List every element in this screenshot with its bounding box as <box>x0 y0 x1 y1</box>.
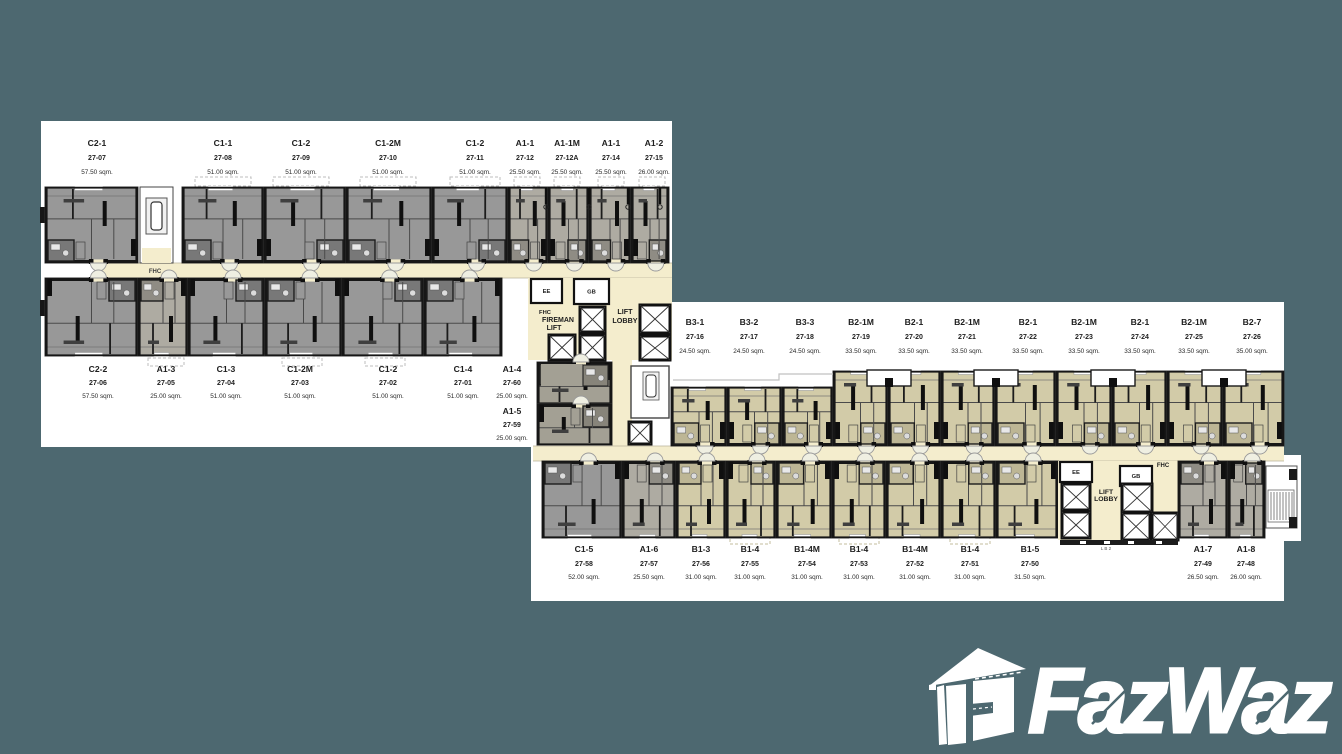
svg-text:EE: EE <box>1072 470 1080 476</box>
svg-text:25.00 sqm.: 25.00 sqm. <box>150 393 182 400</box>
svg-text:GB: GB <box>1132 474 1141 480</box>
svg-text:31.00 sqm.: 31.00 sqm. <box>954 574 986 581</box>
svg-text:C1-2: C1-2 <box>466 138 485 148</box>
svg-text:25.50 sqm.: 25.50 sqm. <box>633 574 665 581</box>
svg-text:C1-2: C1-2 <box>379 364 398 374</box>
svg-text:27-58: 27-58 <box>575 561 593 568</box>
svg-text:27-20: 27-20 <box>905 334 923 341</box>
svg-text:24.50 sqm.: 24.50 sqm. <box>789 348 821 355</box>
svg-text:EE: EE <box>543 289 551 295</box>
svg-text:27-50: 27-50 <box>1021 561 1039 568</box>
svg-text:24.50 sqm.: 24.50 sqm. <box>679 348 711 355</box>
svg-text:27-22: 27-22 <box>1019 334 1037 341</box>
svg-text:25.50 sqm.: 25.50 sqm. <box>551 169 583 176</box>
svg-text:26.00 sqm.: 26.00 sqm. <box>1230 574 1262 581</box>
svg-text:C1-1: C1-1 <box>214 138 233 148</box>
svg-text:27-48: 27-48 <box>1237 561 1255 568</box>
svg-text:27-15: 27-15 <box>645 155 663 162</box>
svg-text:A1-2: A1-2 <box>645 138 664 148</box>
svg-text:31.50 sqm.: 31.50 sqm. <box>1014 574 1046 581</box>
svg-text:FHC: FHC <box>1157 463 1170 469</box>
svg-text:27-08: 27-08 <box>214 155 232 162</box>
svg-text:LOBBY: LOBBY <box>612 316 637 325</box>
svg-text:B2-1M: B2-1M <box>1181 317 1207 327</box>
svg-text:LIFT: LIFT <box>1099 489 1114 496</box>
svg-text:33.50 sqm.: 33.50 sqm. <box>951 348 983 355</box>
svg-text:57.50 sqm.: 57.50 sqm. <box>81 169 113 176</box>
svg-text:C2-1: C2-1 <box>88 138 107 148</box>
svg-text:27-16: 27-16 <box>686 334 704 341</box>
svg-text:33.50 sqm.: 33.50 sqm. <box>845 348 877 355</box>
svg-text:27-19: 27-19 <box>852 334 870 341</box>
svg-text:A1-1: A1-1 <box>602 138 621 148</box>
svg-text:31.00 sqm.: 31.00 sqm. <box>899 574 931 581</box>
svg-text:31.00 sqm.: 31.00 sqm. <box>685 574 717 581</box>
svg-text:B2-7: B2-7 <box>1243 317 1262 327</box>
svg-text:33.50 sqm.: 33.50 sqm. <box>1178 348 1210 355</box>
svg-text:33.50 sqm.: 33.50 sqm. <box>1012 348 1044 355</box>
svg-text:C1-5: C1-5 <box>575 544 594 554</box>
svg-text:B3-1: B3-1 <box>686 317 705 327</box>
svg-text:B2-1M: B2-1M <box>954 317 980 327</box>
svg-text:27-07: 27-07 <box>88 155 106 162</box>
svg-text:52.00 sqm.: 52.00 sqm. <box>568 574 600 581</box>
svg-text:27-60: 27-60 <box>503 380 521 387</box>
svg-text:27-54: 27-54 <box>798 561 816 568</box>
svg-text:B2-1M: B2-1M <box>848 317 874 327</box>
svg-text:A1-1: A1-1 <box>516 138 535 148</box>
svg-text:A1-5: A1-5 <box>503 406 522 416</box>
svg-text:27-04: 27-04 <box>217 380 235 387</box>
svg-text:27-59: 27-59 <box>503 422 521 429</box>
svg-text:LOBBY: LOBBY <box>1094 496 1118 503</box>
svg-text:31.00 sqm.: 31.00 sqm. <box>791 574 823 581</box>
svg-text:27-17: 27-17 <box>740 334 758 341</box>
svg-text:35.00 sqm.: 35.00 sqm. <box>1236 348 1268 355</box>
svg-text:FHC: FHC <box>149 269 162 275</box>
svg-text:B1-4M: B1-4M <box>902 544 928 554</box>
svg-text:FIREMAN: FIREMAN <box>542 317 574 324</box>
svg-text:A1-8: A1-8 <box>1237 544 1256 554</box>
svg-text:27-12A: 27-12A <box>556 155 579 162</box>
svg-text:27-26: 27-26 <box>1243 334 1261 341</box>
svg-text:C1-2M: C1-2M <box>287 364 313 374</box>
svg-text:27-03: 27-03 <box>291 380 309 387</box>
svg-text:B1-4: B1-4 <box>741 544 760 554</box>
svg-text:A1-4: A1-4 <box>503 364 522 374</box>
svg-text:25.50 sqm.: 25.50 sqm. <box>509 169 541 176</box>
svg-text:25.00 sqm.: 25.00 sqm. <box>496 435 528 442</box>
svg-text:B2-1: B2-1 <box>1019 317 1038 327</box>
svg-text:A1-3: A1-3 <box>157 364 176 374</box>
svg-text:27-05: 27-05 <box>157 380 175 387</box>
svg-text:L B 2: L B 2 <box>1101 546 1112 551</box>
svg-text:26.00 sqm.: 26.00 sqm. <box>638 169 670 176</box>
svg-text:51.00 sqm.: 51.00 sqm. <box>285 169 317 176</box>
svg-text:25.50 sqm.: 25.50 sqm. <box>595 169 627 176</box>
svg-text:57.50 sqm.: 57.50 sqm. <box>82 393 114 400</box>
svg-text:31.00 sqm.: 31.00 sqm. <box>734 574 766 581</box>
svg-text:27-53: 27-53 <box>850 561 868 568</box>
svg-text:51.00 sqm.: 51.00 sqm. <box>284 393 316 400</box>
svg-text:A1-6: A1-6 <box>640 544 659 554</box>
svg-text:B1-4M: B1-4M <box>794 544 820 554</box>
svg-text:27-09: 27-09 <box>292 155 310 162</box>
svg-text:27-25: 27-25 <box>1185 334 1203 341</box>
svg-text:FHC: FHC <box>539 310 552 316</box>
svg-text:A1-7: A1-7 <box>1194 544 1213 554</box>
svg-text:25.00 sqm.: 25.00 sqm. <box>496 393 528 400</box>
svg-text:27-51: 27-51 <box>961 561 979 568</box>
svg-text:27-14: 27-14 <box>602 155 620 162</box>
svg-text:27-24: 27-24 <box>1131 334 1149 341</box>
svg-text:LIFT: LIFT <box>617 307 633 316</box>
svg-text:27-18: 27-18 <box>796 334 814 341</box>
svg-text:B1-4: B1-4 <box>961 544 980 554</box>
svg-text:27-06: 27-06 <box>89 380 107 387</box>
svg-text:C1-2M: C1-2M <box>375 138 401 148</box>
svg-text:27-11: 27-11 <box>466 155 484 162</box>
svg-text:27-10: 27-10 <box>379 155 397 162</box>
svg-text:27-49: 27-49 <box>1194 561 1212 568</box>
svg-text:C2-2: C2-2 <box>89 364 108 374</box>
svg-text:27-12: 27-12 <box>516 155 534 162</box>
svg-text:51.00 sqm.: 51.00 sqm. <box>207 169 239 176</box>
svg-text:B2-1: B2-1 <box>905 317 924 327</box>
svg-text:31.00 sqm.: 31.00 sqm. <box>843 574 875 581</box>
svg-text:C1-3: C1-3 <box>217 364 236 374</box>
svg-text:B1-4: B1-4 <box>850 544 869 554</box>
svg-text:B3-2: B3-2 <box>740 317 759 327</box>
svg-text:51.00 sqm.: 51.00 sqm. <box>210 393 242 400</box>
svg-text:27-21: 27-21 <box>958 334 976 341</box>
svg-text:27-01: 27-01 <box>454 380 472 387</box>
svg-text:FazWaz: FazWaz <box>1028 650 1332 752</box>
svg-text:33.50 sqm.: 33.50 sqm. <box>1068 348 1100 355</box>
svg-text:27-56: 27-56 <box>692 561 710 568</box>
svg-text:51.00 sqm.: 51.00 sqm. <box>459 169 491 176</box>
svg-text:B3-3: B3-3 <box>796 317 815 327</box>
svg-text:24.50 sqm.: 24.50 sqm. <box>733 348 765 355</box>
svg-text:51.00 sqm.: 51.00 sqm. <box>372 393 404 400</box>
svg-text:33.50 sqm.: 33.50 sqm. <box>1124 348 1156 355</box>
svg-text:27-55: 27-55 <box>741 561 759 568</box>
svg-text:27-52: 27-52 <box>906 561 924 568</box>
svg-text:B2-1M: B2-1M <box>1071 317 1097 327</box>
svg-text:A1-1M: A1-1M <box>554 138 580 148</box>
svg-text:27-23: 27-23 <box>1075 334 1093 341</box>
svg-text:LIFT: LIFT <box>547 325 562 332</box>
svg-text:GB: GB <box>587 290 596 296</box>
svg-text:51.00 sqm.: 51.00 sqm. <box>372 169 404 176</box>
svg-text:27-02: 27-02 <box>379 380 397 387</box>
svg-text:C1-4: C1-4 <box>454 364 473 374</box>
svg-text:51.00 sqm.: 51.00 sqm. <box>447 393 479 400</box>
svg-text:C1-2: C1-2 <box>292 138 311 148</box>
svg-text:B1-5: B1-5 <box>1021 544 1040 554</box>
svg-text:B2-1: B2-1 <box>1131 317 1150 327</box>
svg-text:27-57: 27-57 <box>640 561 658 568</box>
svg-text:B1-3: B1-3 <box>692 544 711 554</box>
svg-text:33.50 sqm.: 33.50 sqm. <box>898 348 930 355</box>
svg-text:26.50 sqm.: 26.50 sqm. <box>1187 574 1219 581</box>
